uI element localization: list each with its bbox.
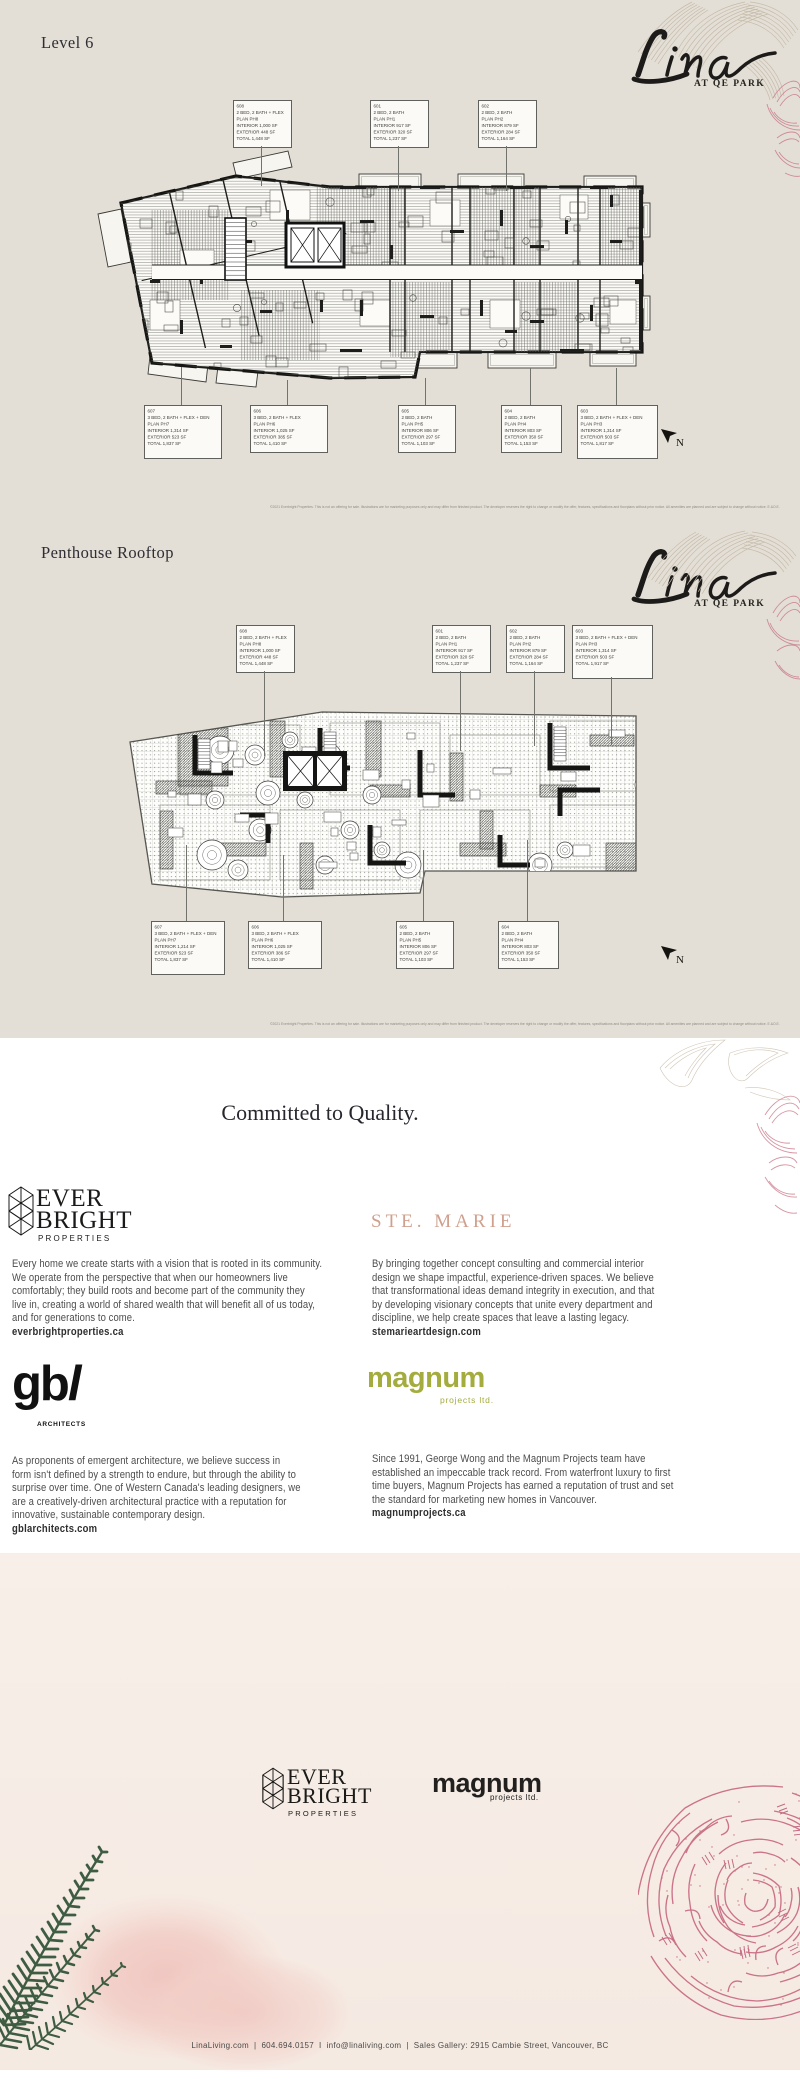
svg-text:N: N — [676, 954, 684, 966]
svg-text:AT QE PARK: AT QE PARK — [694, 79, 765, 89]
svg-text:N: N — [676, 437, 684, 449]
